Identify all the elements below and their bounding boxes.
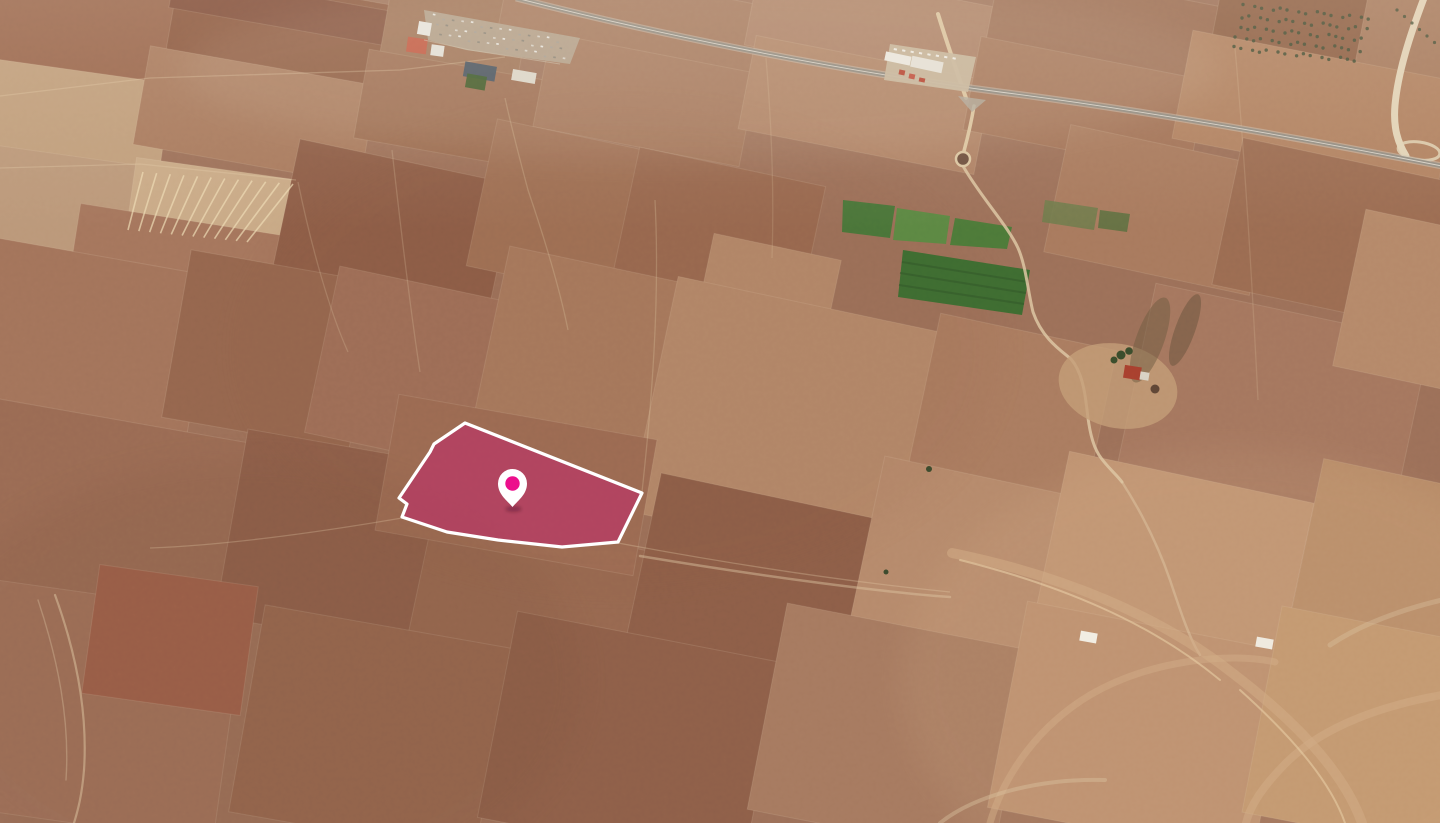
satellite-canvas (0, 0, 1440, 823)
pin-dot (505, 476, 519, 490)
pin-shadow (506, 506, 522, 512)
satellite-map[interactable] (0, 0, 1440, 823)
distance-haze (0, 0, 1440, 230)
